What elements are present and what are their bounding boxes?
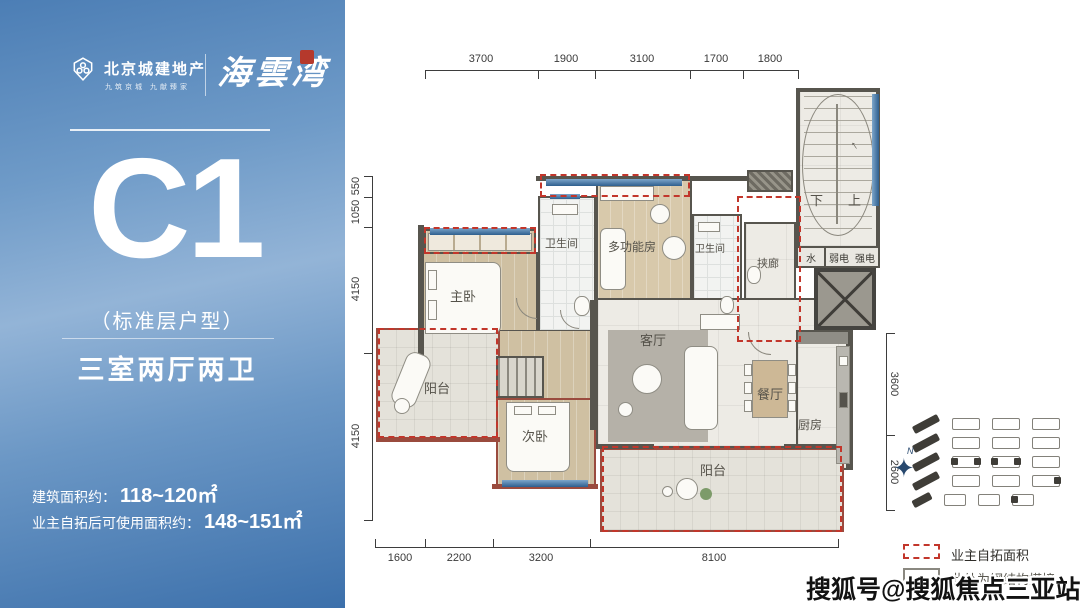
stove-icon (839, 392, 848, 408)
elevator-shaft (814, 268, 876, 330)
dim-bottom-4: 8100 (694, 552, 734, 564)
stair-center-rail (836, 104, 838, 224)
unit-type-note: （标准层户型） (45, 305, 290, 334)
label-stair-down: 下 (810, 190, 823, 209)
site-plan-building-icon (992, 475, 1020, 487)
label-dining: 餐厅 (757, 384, 783, 403)
pillow-icon (428, 300, 437, 320)
internal-staircase (496, 356, 544, 398)
dim-top-1: 3700 (461, 53, 501, 65)
vanity-icon (698, 222, 720, 232)
dim-left-2: 1050 (350, 192, 362, 232)
dim-right-1: 3600 (888, 364, 900, 404)
dim-tick (364, 353, 373, 354)
dim-tick (493, 539, 494, 548)
shaft-water-label: 水 (806, 250, 816, 265)
dim-tick (690, 70, 691, 79)
site-plan-building-icon (992, 437, 1020, 449)
window-bath1 (550, 194, 580, 199)
site-plan-building-icon (952, 437, 980, 449)
window-multiroom (546, 179, 682, 186)
round-table-icon (662, 236, 686, 260)
label-living: 客厅 (640, 330, 666, 349)
label-bathroom-2: 卫生间 (695, 240, 725, 255)
site-plan-row (912, 494, 1078, 506)
dim-tick (886, 435, 895, 436)
dim-tick (886, 333, 895, 334)
pillow-icon (538, 406, 556, 415)
site-plan-building-icon (911, 492, 932, 508)
sink-icon (839, 356, 848, 366)
site-plan-key (912, 418, 1078, 530)
dim-tick (425, 70, 426, 79)
site-plan-building-icon (912, 433, 940, 453)
built-area-value: 118~120㎡ (120, 485, 217, 507)
stool-icon (618, 402, 633, 417)
dim-top-4: 1700 (696, 53, 736, 65)
info-panel: 北京城建地产 九筑京城 九献臻家 海雲湾 C1 （标准层户型） 三室两厅两卫 建… (0, 0, 345, 608)
armchair-icon (650, 204, 670, 224)
built-area-label: 建筑面积约： (32, 489, 116, 505)
desk-icon (600, 186, 654, 201)
patio-chair-icon (662, 486, 673, 497)
tv-wall (590, 300, 597, 430)
kitchen-counter-icon (798, 332, 848, 344)
built-area-line: 建筑面积约：118~120㎡ (32, 479, 217, 508)
dim-tick (743, 70, 744, 79)
dim-top-3: 3100 (622, 53, 662, 65)
brand-divider (205, 54, 206, 96)
site-plan-building-icon (1032, 475, 1060, 487)
site-plan-building-icon (944, 494, 966, 506)
site-plan-row (912, 418, 1078, 430)
panel-divider-mid (62, 338, 274, 339)
sofa-icon (684, 346, 718, 430)
site-plan-building-icon (992, 418, 1020, 430)
site-plan-building-icon (1032, 456, 1060, 468)
dim-left-3: 4150 (350, 269, 362, 309)
dim-tick (375, 539, 376, 548)
chair-icon (788, 400, 796, 412)
dim-line-bottom (375, 547, 838, 548)
dim-line-right (886, 333, 887, 510)
watermark: 搜狐号@搜狐焦点三亚站 (806, 570, 1080, 606)
site-plan-row (912, 437, 1078, 449)
wall-segment (596, 444, 654, 449)
usable-area-label: 业主自拓后可使用面积约： (32, 515, 200, 531)
entry-cabinet-icon (700, 314, 740, 330)
site-plan-building-icon (1012, 494, 1034, 506)
unit-layout: 三室两厅两卫 (45, 348, 290, 387)
dim-tick (595, 70, 596, 79)
usable-area-line: 业主自拓后可使用面积约：148~151㎡ (32, 505, 302, 534)
label-balcony-bottom: 阳台 (700, 460, 726, 479)
dim-tick (364, 227, 373, 228)
developer-name: 北京城建地产 (104, 58, 206, 79)
label-balcony-left: 阳台 (424, 378, 450, 397)
site-plan-building-icon (1032, 437, 1060, 449)
wall-segment (418, 225, 424, 360)
dim-tick (364, 520, 373, 521)
stair-oval (802, 94, 874, 236)
label-corridor: 挟廊 (757, 255, 779, 271)
page: 北京城建地产 九筑京城 九献臻家 海雲湾 C1 （标准层户型） 三室两厅两卫 建… (0, 0, 1080, 608)
strong-power-label: 强电 (855, 250, 875, 265)
equipment-platform (747, 170, 793, 192)
unit-code: C1 (88, 138, 258, 280)
site-plan-building-icon (912, 452, 940, 472)
red-seal-icon (300, 50, 314, 64)
toilet-icon (720, 296, 734, 314)
window-master (430, 228, 530, 235)
developer-logo-icon (70, 56, 96, 87)
dim-top-5: 1800 (750, 53, 790, 65)
label-kitchen: 厨房 (798, 416, 822, 433)
plant-icon (700, 488, 712, 500)
weak-power-label: 弱电 (829, 250, 849, 265)
pillow-icon (514, 406, 532, 415)
label-second-bedroom: 次卧 (522, 426, 548, 445)
label-stair-up: 上 (848, 190, 861, 209)
patio-table-icon (676, 478, 698, 500)
site-plan-building-icon (912, 414, 940, 434)
site-plan-building-icon (978, 494, 1000, 506)
pillow-icon (428, 270, 437, 290)
compass-icon: ✦N (893, 455, 915, 481)
legend-swatch-expandable (903, 544, 940, 559)
wardrobe-icon (428, 233, 532, 251)
vanity-icon (552, 204, 578, 215)
chair-icon (788, 364, 796, 376)
developer-slogan: 九筑京城 九献臻家 (105, 82, 190, 92)
dim-tick (364, 176, 373, 177)
dim-bottom-2: 2200 (439, 552, 479, 564)
dim-tick (364, 197, 373, 198)
label-multi-room: 多功能房 (608, 238, 656, 255)
dim-tick (838, 539, 839, 548)
dim-tick (425, 539, 426, 548)
dim-top-2: 1900 (546, 53, 586, 65)
site-plan-building-icon (952, 475, 980, 487)
dim-bottom-1: 1600 (380, 552, 420, 564)
side-table-icon (394, 398, 410, 414)
coffee-table-icon (632, 364, 662, 394)
site-plan-row (912, 475, 1078, 487)
site-plan-building-icon (912, 471, 940, 491)
usable-area-value: 148~151㎡ (204, 511, 302, 533)
legend-label-expandable: 业主自拓面积 (951, 545, 1029, 564)
chair-icon (744, 382, 752, 394)
label-master-bedroom: 主卧 (450, 286, 476, 305)
site-plan-building-icon (952, 418, 980, 430)
window-second-bedroom (502, 480, 588, 487)
dim-left-4: 4150 (350, 416, 362, 456)
dim-bottom-3: 3200 (521, 552, 561, 564)
shaft-water: 水 (796, 246, 826, 268)
wall-segment-red (376, 437, 500, 442)
dim-tick (798, 70, 799, 79)
dim-tick (590, 539, 591, 548)
dim-tick (538, 70, 539, 79)
shaft-electrical: 弱电 强电 (824, 246, 880, 268)
site-plan-building-icon (992, 456, 1020, 468)
chair-icon (744, 400, 752, 412)
compass-north-label: N (907, 447, 914, 456)
chair-icon (744, 364, 752, 376)
brand-header: 北京城建地产 九筑京城 九献臻家 海雲湾 (70, 52, 320, 112)
site-plan-row (912, 456, 1078, 468)
chair-icon (788, 382, 796, 394)
window-stairwell (872, 94, 879, 206)
site-plan-building-icon (952, 456, 980, 468)
label-bathroom-1: 卫生间 (545, 235, 578, 251)
site-plan-building-icon (1032, 418, 1060, 430)
dim-tick (886, 510, 895, 511)
